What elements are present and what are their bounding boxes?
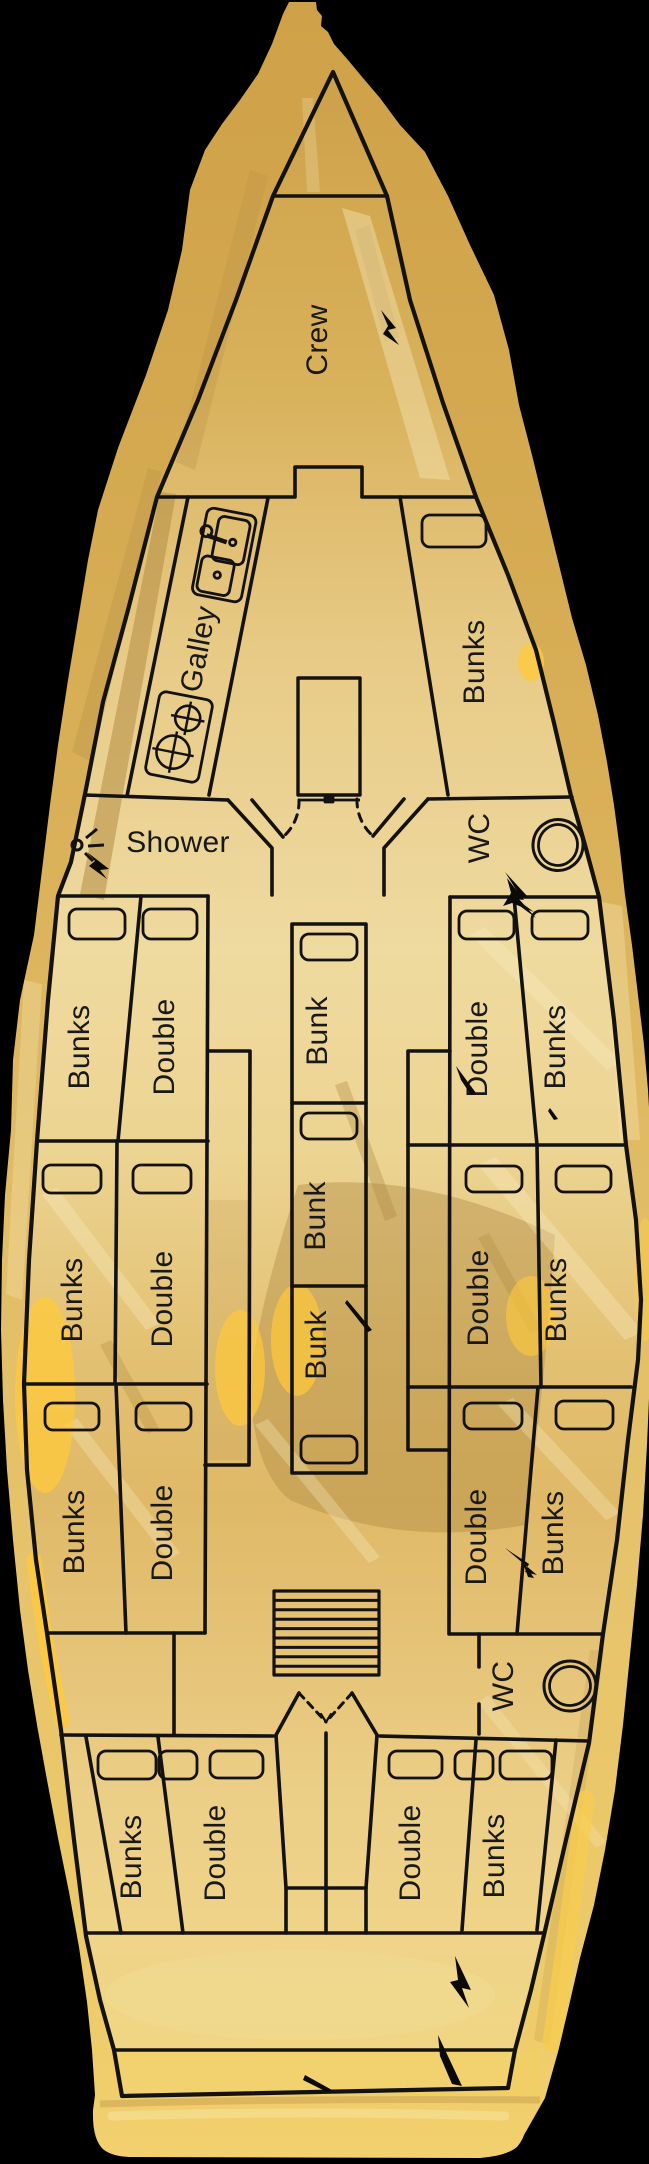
svg-text:Double: Double bbox=[462, 1250, 495, 1347]
svg-text:Bunks: Bunks bbox=[56, 1258, 89, 1343]
svg-text:Bunk: Bunk bbox=[301, 996, 334, 1066]
svg-text:Double: Double bbox=[394, 1805, 427, 1902]
svg-text:Bunk: Bunk bbox=[300, 1310, 333, 1380]
svg-text:Double: Double bbox=[146, 1485, 179, 1582]
svg-text:Bunks: Bunks bbox=[537, 1491, 570, 1576]
svg-text:WC: WC bbox=[463, 813, 496, 864]
svg-text:Bunks: Bunks bbox=[539, 1005, 572, 1090]
svg-text:Shower: Shower bbox=[126, 826, 230, 859]
svg-text:WC: WC bbox=[487, 1661, 520, 1712]
svg-text:Double: Double bbox=[146, 1251, 179, 1348]
svg-text:Bunks: Bunks bbox=[478, 1814, 511, 1899]
svg-text:Bunks: Bunks bbox=[540, 1258, 573, 1343]
svg-text:Double: Double bbox=[199, 1805, 232, 1902]
svg-text:Bunks: Bunks bbox=[58, 1490, 91, 1575]
svg-text:Bunk: Bunk bbox=[299, 1181, 332, 1251]
svg-text:Crew: Crew bbox=[301, 304, 334, 375]
svg-text:Double: Double bbox=[148, 999, 181, 1096]
svg-text:Bunks: Bunks bbox=[63, 1005, 96, 1090]
svg-text:Bunks: Bunks bbox=[115, 1815, 148, 1900]
svg-text:Bunks: Bunks bbox=[458, 620, 491, 705]
svg-text:Double: Double bbox=[460, 1489, 493, 1586]
